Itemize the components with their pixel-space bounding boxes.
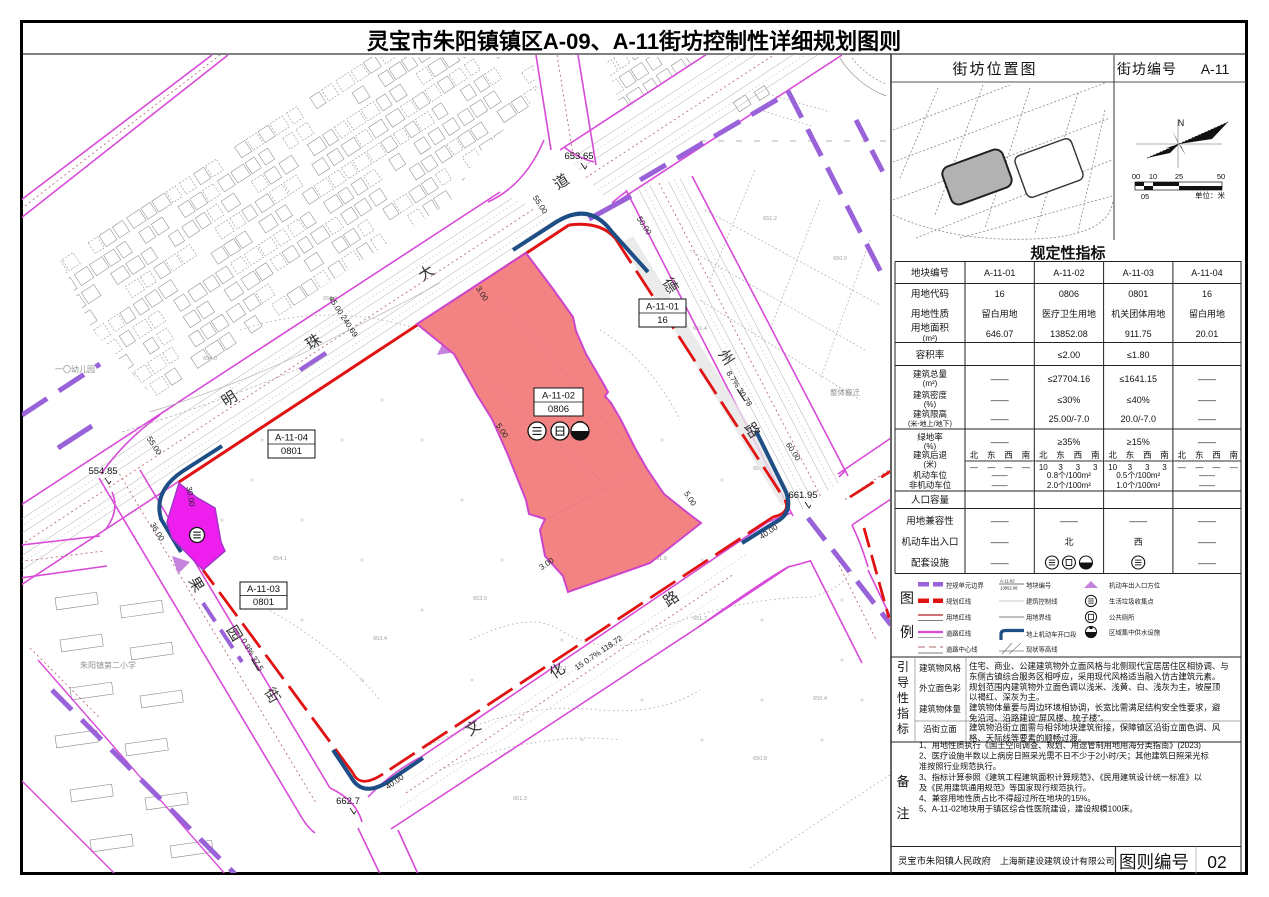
svg-text:——: —— [1198,414,1216,424]
svg-text:(m²): (m²) [923,334,938,343]
svg-text:建筑物体量: 建筑物体量 [919,704,961,714]
svg-text:南: 南 [1230,450,1239,460]
svg-text:——: —— [991,437,1009,447]
svg-text:用地性质: 用地性质 [911,308,950,320]
svg-text:02: 02 [1207,852,1226,872]
svg-text:≤1.80: ≤1.80 [1127,350,1149,360]
svg-text:0.8个/100m²: 0.8个/100m² [1047,471,1091,480]
svg-text:16: 16 [657,315,668,326]
svg-text:0801: 0801 [281,446,302,457]
svg-text:性: 性 [897,691,909,705]
svg-text:651.2: 651.2 [763,216,777,222]
svg-text:——: —— [1198,537,1216,547]
svg-text:西: 西 [1074,450,1083,460]
svg-text:东: 东 [1195,450,1204,460]
svg-text:60.00: 60.00 [784,441,803,463]
svg-text:化: 化 [547,660,569,682]
svg-text:留白用地: 留白用地 [982,308,1018,319]
svg-text:—: — [1230,463,1238,472]
svg-text:指: 指 [897,706,909,721]
svg-text:图则编号: 图则编号 [1119,852,1189,872]
svg-text:道路红线: 道路红线 [946,629,972,638]
svg-text:北: 北 [970,450,979,460]
svg-text:北: 北 [1064,537,1073,547]
svg-text:(米): (米) [923,459,937,469]
svg-text:上海新建设建筑设计有限公司: 上海新建设建筑设计有限公司 [1000,855,1114,866]
svg-text:653.65: 653.65 [564,151,593,162]
svg-text:651.3: 651.3 [513,796,527,802]
svg-text:2、医疗设施半数以上病房日照采光需不日不少于2小时/天；其他: 2、医疗设施半数以上病房日照采光需不日不少于2小时/天；其他建筑日照采光标 [919,751,1209,761]
svg-text:北: 北 [1178,450,1187,460]
svg-text:——: —— [1199,471,1215,480]
svg-text:≤2.00: ≤2.00 [1058,350,1080,360]
svg-text:建筑密度: 建筑密度 [913,390,948,400]
svg-text:现状等高线: 现状等高线 [1026,645,1058,654]
svg-text:≤30%: ≤30% [1057,395,1080,405]
svg-text:整体搬迁: 整体搬迁 [830,387,860,397]
svg-text:西: 西 [1004,450,1013,460]
svg-text:0806: 0806 [1059,289,1079,299]
svg-text:朱阳镇第二小学: 朱阳镇第二小学 [80,660,136,670]
svg-text:20.01: 20.01 [1196,329,1219,339]
svg-text:≥35%: ≥35% [1057,437,1080,447]
svg-text:——: —— [1198,437,1216,447]
svg-text:—: — [970,463,978,472]
svg-text:——: —— [991,558,1009,568]
svg-text:——: —— [991,516,1009,526]
svg-text:653.0: 653.0 [473,596,487,602]
svg-text:配套设施: 配套设施 [911,557,950,569]
svg-text:引: 引 [897,660,909,674]
svg-text:建筑后退: 建筑后退 [913,450,948,460]
svg-text:机动车位: 机动车位 [913,470,948,480]
svg-text:州: 州 [715,347,737,369]
svg-text:沿街立面: 沿街立面 [923,724,957,734]
svg-text:建筑控制线: 建筑控制线 [1026,597,1058,606]
svg-text:5、A-11-02地块用于镇区综合性医院建设，建设规模100: 5、A-11-02地块用于镇区综合性医院建设，建设规模100床。 [919,804,1138,814]
svg-text:生活垃圾收集点: 生活垃圾收集点 [1109,597,1154,606]
svg-text:——: —— [1198,374,1216,384]
svg-text:55.00: 55.00 [531,194,550,216]
svg-text:A-11-01: A-11-01 [646,302,679,313]
svg-text:机动车出入口: 机动车出入口 [901,536,958,548]
svg-text:绿地率: 绿地率 [917,432,943,442]
svg-text:东侧古镇综合服务区相呼应，采用现代风格适当融入仿古建筑元素。: 东侧古镇综合服务区相呼应，采用现代风格适当融入仿古建筑元素。 [969,671,1220,681]
svg-text:注: 注 [896,806,909,821]
svg-text:——: —— [992,481,1008,490]
svg-text:灵宝市朱阳镇人民政府: 灵宝市朱阳镇人民政府 [898,855,991,866]
svg-text:——: —— [992,471,1008,480]
svg-text:规划范围内建筑物外立面色调以浅米、浅黄、白、浅灰为主，坡屋顶: 规划范围内建筑物外立面色调以浅米、浅黄、白、浅灰为主，坡屋顶 [969,682,1221,692]
svg-text:——: —— [1198,516,1216,526]
svg-text:南: 南 [1091,450,1100,460]
svg-text:——: —— [1198,558,1216,568]
svg-text:0801: 0801 [1128,289,1148,299]
svg-text:西: 西 [1134,537,1143,547]
svg-text:A-11-01: A-11-01 [984,268,1015,278]
svg-text:650.8: 650.8 [753,756,767,762]
svg-text:1、用地性质执行《国土空间调查、规划、用途管制用地用海分类指: 1、用地性质执行《国土空间调查、规划、用途管制用地用海分类指南》(2023) [919,740,1201,750]
svg-text:A-11-03: A-11-03 [1123,268,1154,278]
svg-text:653.4: 653.4 [373,636,387,642]
svg-text:13852.08: 13852.08 [1050,329,1088,339]
svg-text:用地界线: 用地界线 [1026,613,1052,622]
svg-text:4、兼容用地性质占比不得超过所在地块的15%。: 4、兼容用地性质占比不得超过所在地块的15%。 [919,793,1096,803]
svg-text:东: 东 [987,450,996,460]
svg-text:≤40%: ≤40% [1127,395,1150,405]
svg-text:00: 00 [1132,172,1140,181]
svg-text:554.85: 554.85 [88,466,117,477]
svg-text:免沿河、沿路建设“屏风楼、梳子楼”。: 免沿河、沿路建设“屏风楼、梳子楼”。 [969,713,1109,723]
svg-text:东: 东 [1056,450,1065,460]
svg-text:0806: 0806 [548,404,569,415]
svg-text:654.1: 654.1 [273,556,287,562]
svg-text:建筑物沿街立面需与相邻地块建筑衔接，保障镇区沿街立面色调、风: 建筑物沿街立面需与相邻地块建筑衔接，保障镇区沿街立面色调、风 [969,723,1221,733]
svg-text:3、指标计算参照《建筑工程建筑面积计算规范》、《民用建筑设计: 3、指标计算参照《建筑工程建筑面积计算规范》、《民用建筑设计统一标准》以 [919,772,1202,782]
svg-text:654.0: 654.0 [203,356,217,362]
svg-text:用地红线: 用地红线 [946,613,972,622]
svg-text:650.9: 650.9 [833,256,847,262]
svg-text:地上机动车开口段: 地上机动车开口段 [1026,630,1077,639]
svg-text:建筑总量: 建筑总量 [913,369,948,379]
svg-text:(米-地上/地下): (米-地上/地下) [908,419,952,428]
svg-text:非机动车位: 非机动车位 [909,480,952,490]
svg-text:备: 备 [896,774,909,789]
svg-text:——: —— [991,374,1009,384]
svg-text:住宅、商业、公建建筑物外立面风格与北侧现代宜居居住区相协调、: 住宅、商业、公建建筑物外立面风格与北侧现代宜居居住区相协调、与 [969,661,1229,671]
svg-text:——: —— [1129,516,1147,526]
svg-text:道: 道 [551,171,573,193]
svg-text:导: 导 [897,676,909,690]
svg-text:医疗卫生用地: 医疗卫生用地 [1042,308,1096,319]
svg-text:——: —— [1060,516,1078,526]
svg-text:15 0.7% 118.72: 15 0.7% 118.72 [573,633,624,672]
svg-text:大: 大 [416,262,438,284]
svg-text:≥15%: ≥15% [1127,437,1150,447]
svg-text:一〇幼儿园: 一〇幼儿园 [55,364,95,374]
svg-text:911.75: 911.75 [1125,329,1152,339]
svg-text:651.4: 651.4 [693,326,707,332]
svg-text:明: 明 [219,388,241,410]
svg-text:——: —— [1198,395,1216,405]
svg-text:646.07: 646.07 [986,329,1014,339]
svg-text:用地兼容性: 用地兼容性 [906,515,954,527]
svg-text:地块编号: 地块编号 [1026,581,1051,590]
svg-text:地块编号: 地块编号 [911,267,949,279]
svg-text:25.00/-7.0: 25.00/-7.0 [1049,414,1090,424]
svg-text:≤1641.15: ≤1641.15 [1120,374,1157,384]
svg-text:662.7: 662.7 [336,796,360,807]
svg-text:机关团体用地: 机关团体用地 [1111,308,1165,319]
svg-text:道路中心线: 道路中心线 [946,645,978,654]
svg-text:0801: 0801 [253,597,274,608]
svg-text:50: 50 [1217,172,1225,181]
svg-text:25: 25 [1175,172,1183,181]
svg-text:20.0/-7.0: 20.0/-7.0 [1120,414,1156,424]
svg-text:西: 西 [1143,450,1152,460]
svg-text:A-11-03: A-11-03 [247,584,280,595]
svg-text:区域集中供水设施: 区域集中供水设施 [1109,628,1161,637]
svg-text:北: 北 [1108,450,1117,460]
svg-text:珠: 珠 [303,331,325,353]
svg-text:西: 西 [1212,450,1221,460]
svg-text:南: 南 [1022,450,1031,460]
svg-text:外立面色彩: 外立面色彩 [919,683,961,693]
svg-text:建筑限高: 建筑限高 [913,409,947,419]
svg-text:街坊位置图: 街坊位置图 [952,61,1037,78]
svg-text:图: 图 [900,590,914,606]
svg-text:控规单元边界: 控规单元边界 [946,581,984,590]
svg-text:3: 3 [1093,463,1098,472]
svg-text:——: —— [991,537,1009,547]
svg-text:661.95: 661.95 [788,490,817,501]
svg-text:例: 例 [900,624,914,640]
svg-text:N: N [1178,118,1185,128]
svg-text:东: 东 [1126,450,1135,460]
svg-text:街坊编号: 街坊编号 [1117,61,1177,77]
svg-text:规定性指标: 规定性指标 [1030,244,1105,262]
svg-text:1.0个/100m²: 1.0个/100m² [1116,481,1160,490]
svg-text:A-11-02: A-11-02 [542,391,575,402]
svg-text:A-11-02: A-11-02 [1053,268,1084,278]
svg-text:0.5个/100m²: 0.5个/100m² [1116,471,1160,480]
svg-text:16: 16 [1202,289,1212,299]
svg-text:单位：米: 单位：米 [1195,190,1225,200]
svg-text:用地面积: 用地面积 [911,322,950,334]
svg-text:2.0个/100m²: 2.0个/100m² [1047,481,1091,490]
svg-text:A-11-02: A-11-02 [1000,579,1015,584]
svg-text:南: 南 [1160,450,1169,460]
svg-text:机动车出入口方位: 机动车出入口方位 [1109,581,1161,590]
svg-text:13852.08: 13852.08 [1000,586,1018,591]
svg-text:及《民用建筑通用规范》等国家现行规范执行。: 及《民用建筑通用规范》等国家现行规范执行。 [919,782,1091,792]
svg-text:≤27704.16: ≤27704.16 [1048,374,1090,384]
svg-text:5.00: 5.00 [682,490,698,508]
svg-text:—: — [1178,463,1186,472]
svg-text:3: 3 [1162,463,1167,472]
svg-text:准按照行业规范执行。: 准按照行业规范执行。 [919,761,1001,771]
svg-text:公共厕所: 公共厕所 [1109,613,1135,622]
svg-text:用地代码: 用地代码 [911,288,949,300]
svg-text:建筑物风格: 建筑物风格 [919,663,961,673]
svg-text:(%): (%) [924,400,937,409]
svg-text:路: 路 [661,588,683,610]
svg-text:(m²): (m²) [923,379,938,388]
svg-text:—: — [1022,463,1030,472]
svg-text:10: 10 [1149,172,1157,181]
svg-text:651.7: 651.7 [693,616,707,622]
svg-text:A-11-04: A-11-04 [275,433,308,444]
svg-text:50.00: 50.00 [635,215,654,237]
svg-text:规划红线: 规划红线 [946,597,972,606]
svg-text:留白用地: 留白用地 [1189,308,1225,319]
svg-text:650.4: 650.4 [813,696,827,702]
svg-text:A-11-04: A-11-04 [1191,268,1222,278]
svg-text:——: —— [1199,481,1215,490]
svg-text:05: 05 [1141,192,1149,201]
svg-text:55.00: 55.00 [145,435,164,457]
svg-text:标: 标 [897,722,909,736]
svg-text:——: —— [991,414,1009,424]
svg-text:容积率: 容积率 [916,349,945,361]
svg-text:建筑物体量要与周边环境相协调，长宽比需满足结构安全性要求，避: 建筑物体量要与周边环境相协调，长宽比需满足结构安全性要求，避 [969,703,1221,713]
svg-text:以褐红、深灰为主。: 以褐红、深灰为主。 [969,692,1044,702]
svg-text:A-11: A-11 [1201,61,1230,77]
svg-text:北: 北 [1039,450,1048,460]
svg-text:16: 16 [995,289,1005,299]
svg-text:——: —— [991,395,1009,405]
svg-text:人口容量: 人口容量 [911,494,950,506]
